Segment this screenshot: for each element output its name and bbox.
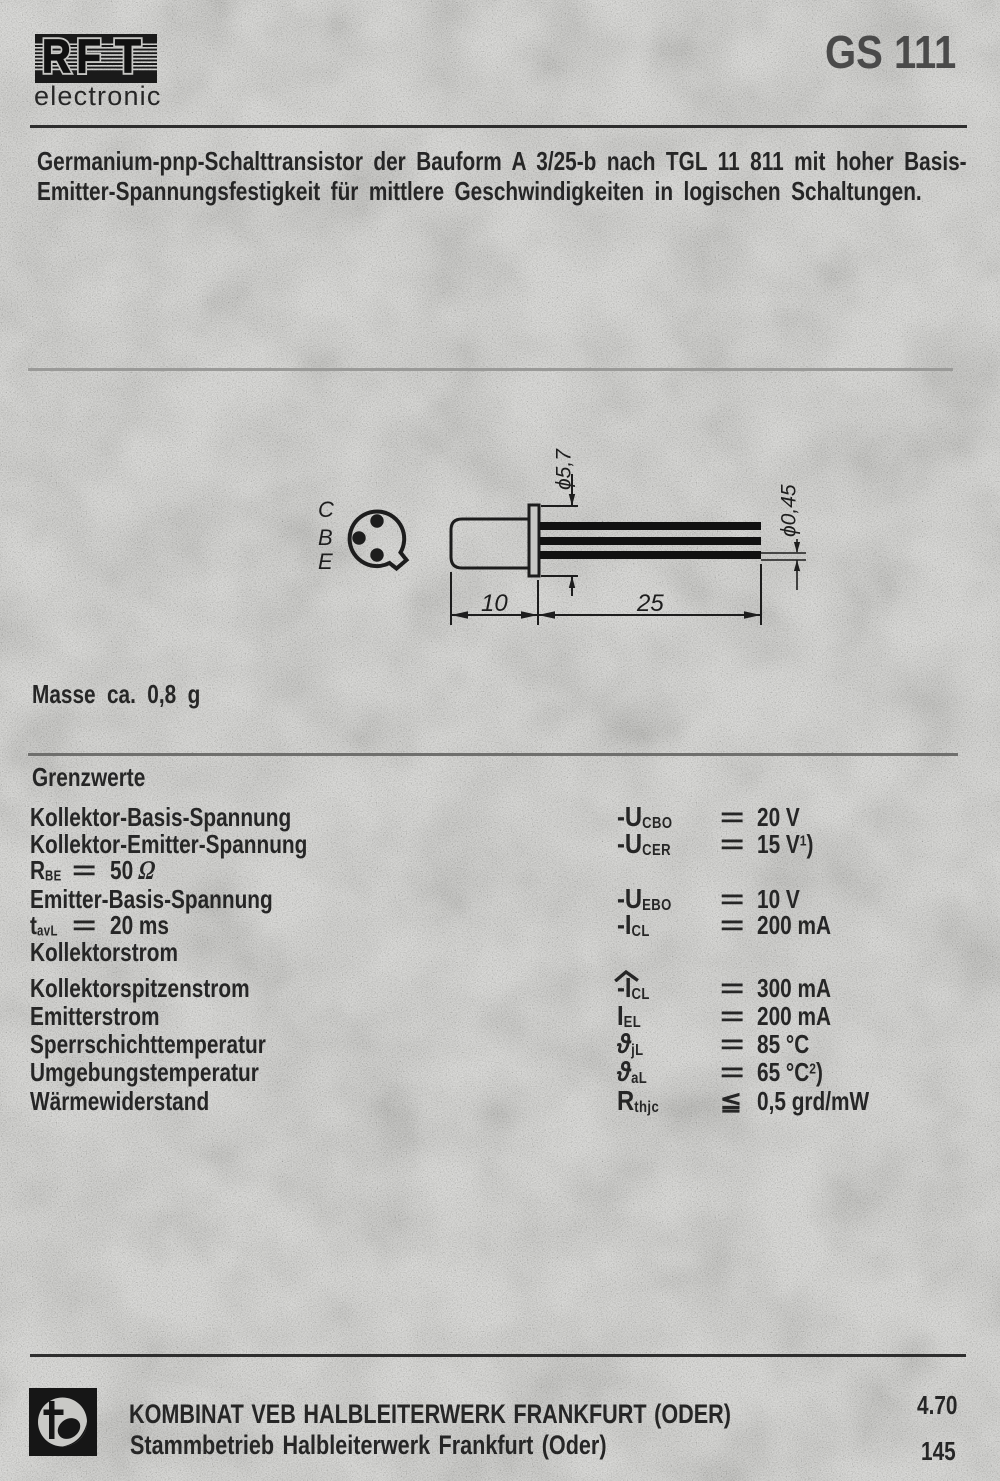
svg-text:C: C: [318, 497, 334, 522]
svg-text:R: R: [42, 34, 71, 83]
svg-text:E: E: [318, 549, 333, 574]
svg-text:B: B: [318, 525, 333, 550]
svg-text:T: T: [115, 34, 141, 83]
svg-text:ϕ5,7: ϕ5,7: [553, 448, 576, 490]
svg-text:10: 10: [481, 590, 508, 617]
svg-text:F: F: [77, 34, 101, 83]
svg-text:ϕ0,45: ϕ0,45: [778, 484, 801, 537]
svg-text:25: 25: [636, 590, 664, 617]
